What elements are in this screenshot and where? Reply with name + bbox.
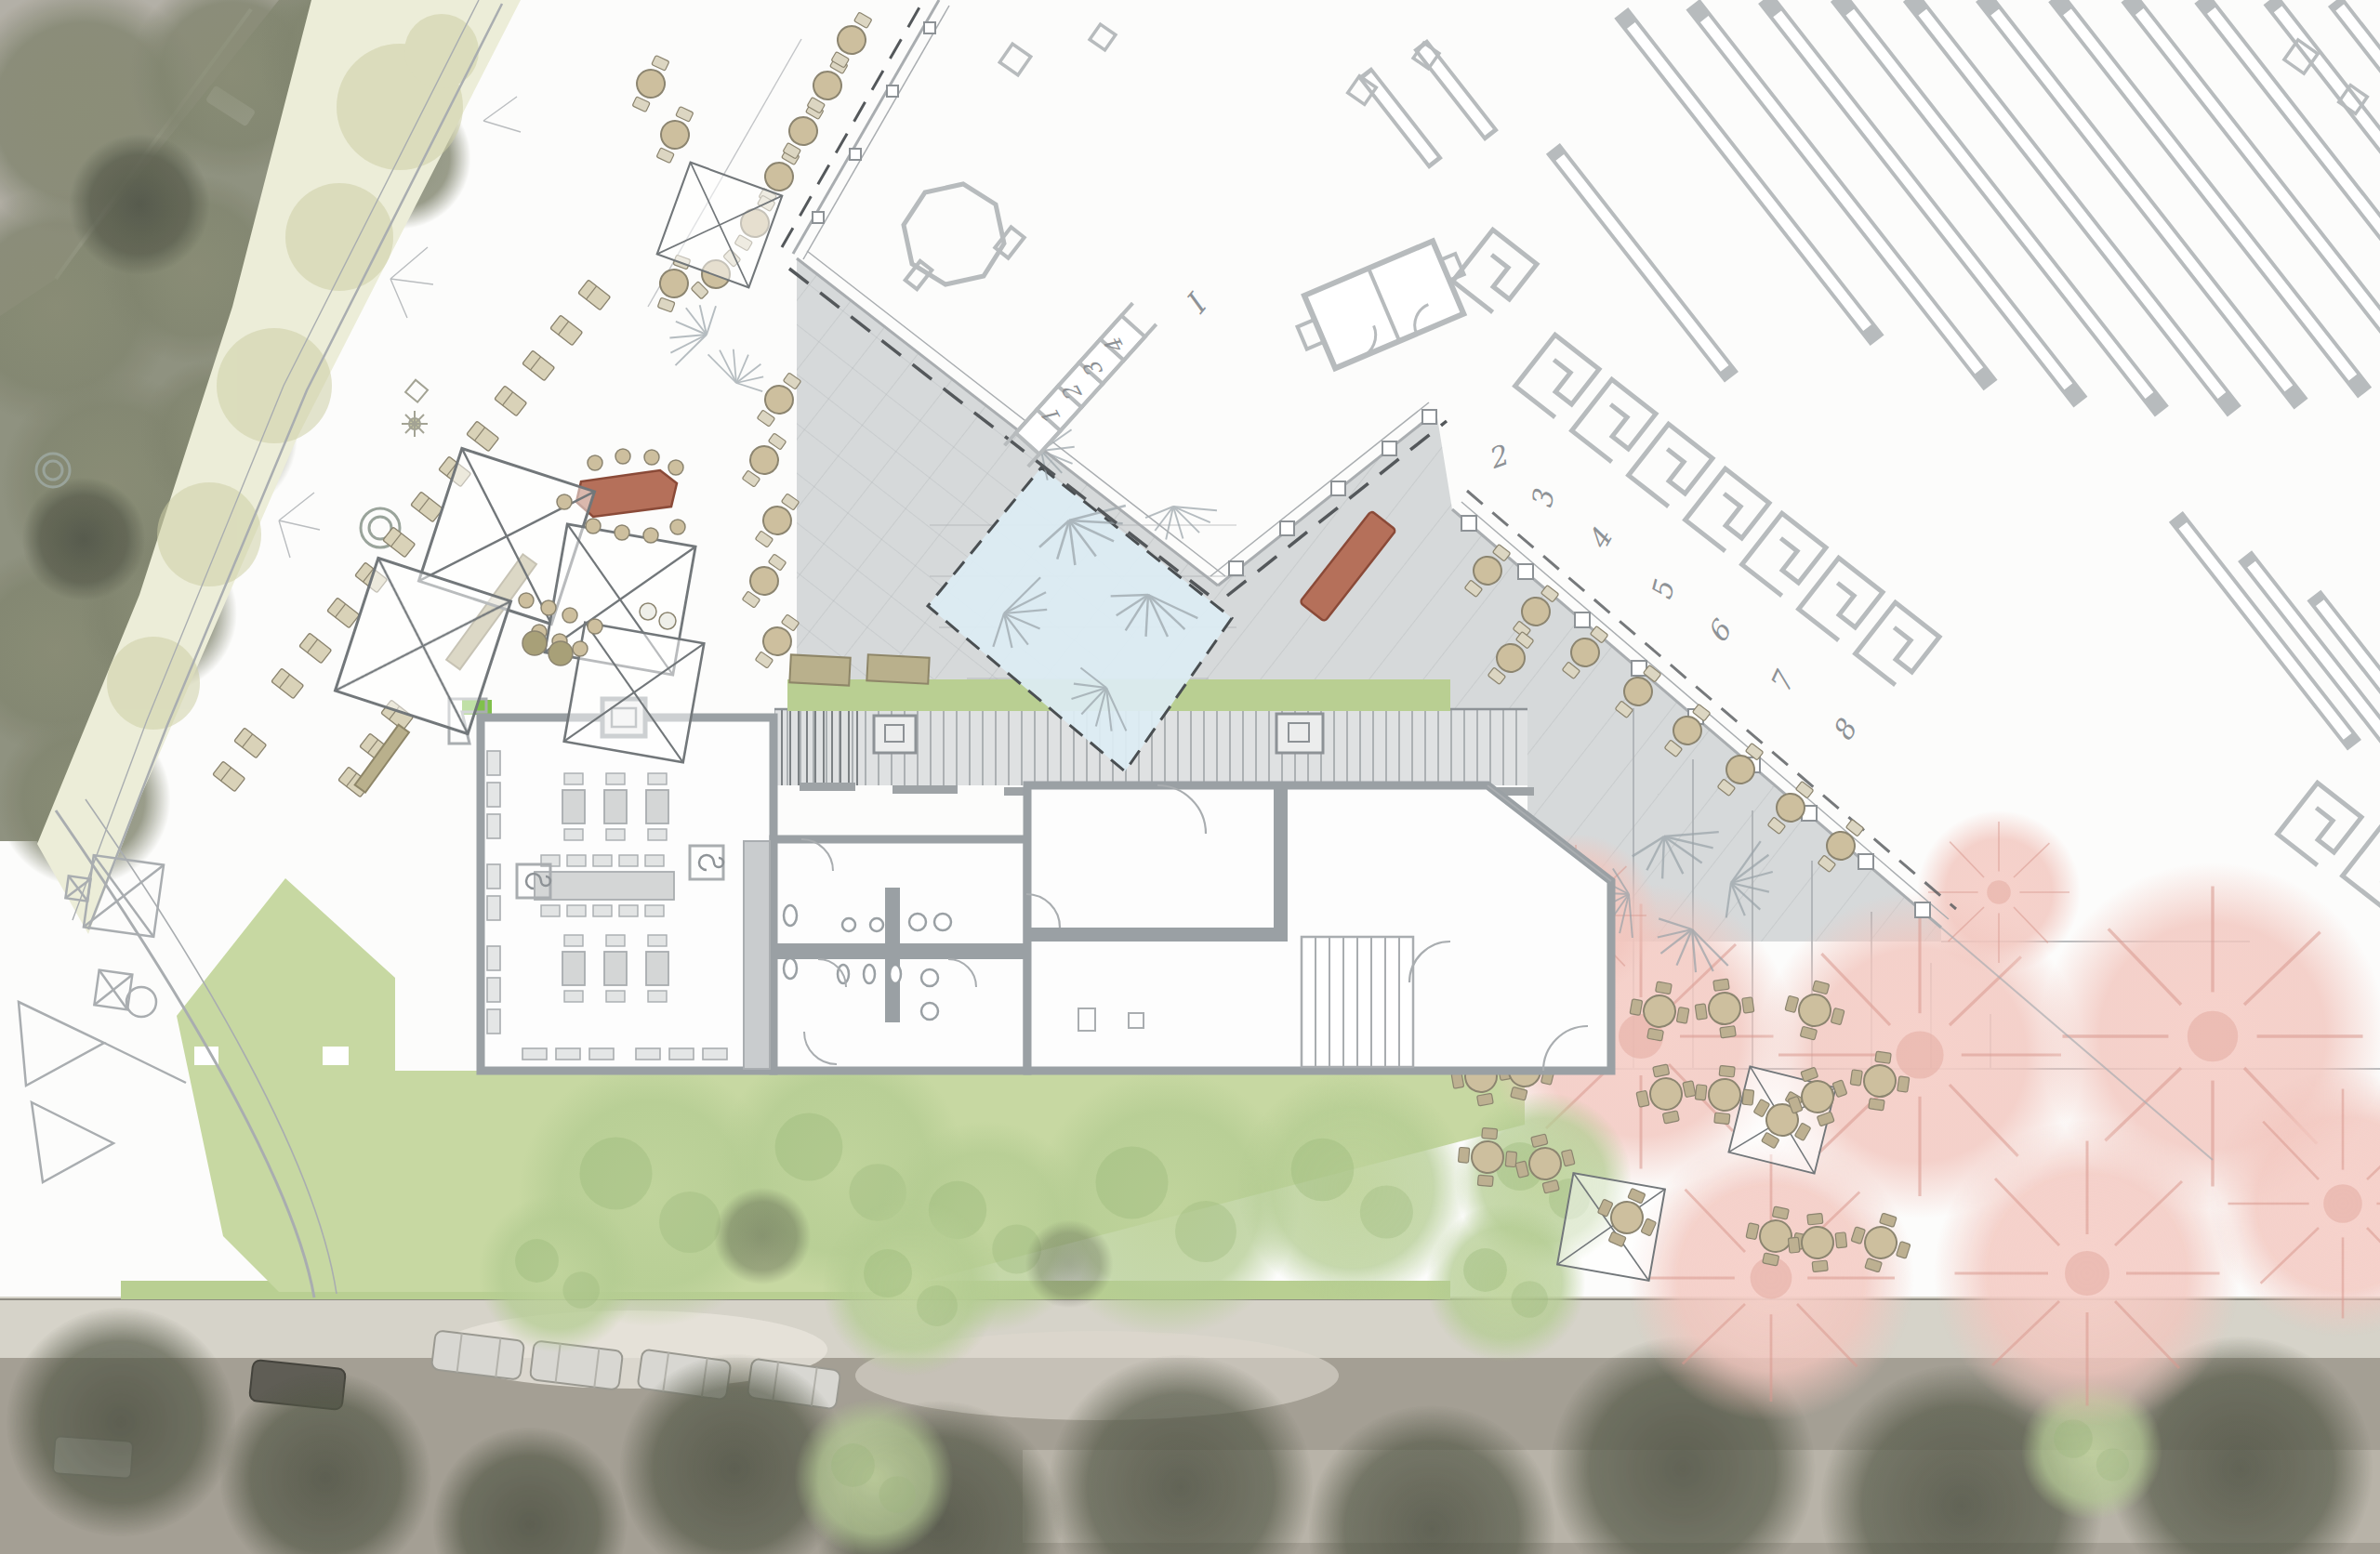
sun-symbol: [402, 411, 428, 437]
flowering-tree: [1934, 1120, 2241, 1427]
stair-block: [1302, 937, 1413, 1067]
stair-landing: [1276, 714, 1323, 753]
service-counter: [744, 841, 770, 1069]
communal-table: [535, 872, 674, 900]
stair-run-west: [774, 709, 865, 785]
lawn-bench: [323, 1047, 349, 1065]
restroom-wall: [885, 888, 900, 1022]
deck-bench: [866, 654, 929, 683]
site-plan-page: 2 3 4 5 6 7 8 1 2 3 4 I: [0, 0, 2380, 1554]
flowering-tree: [1917, 810, 2081, 974]
aerial-tree-dark: [22, 478, 146, 601]
restroom-wall: [773, 943, 1027, 959]
flowering-tree: [1628, 1135, 1914, 1421]
deck-bench: [789, 654, 850, 685]
wall: [1027, 928, 1288, 942]
wall: [1274, 785, 1288, 934]
stair-landing: [874, 716, 916, 753]
aerial-tree-dark: [69, 134, 210, 275]
site-plan-drawing: 2 3 4 5 6 7 8 1 2 3 4 I: [0, 0, 2380, 1554]
